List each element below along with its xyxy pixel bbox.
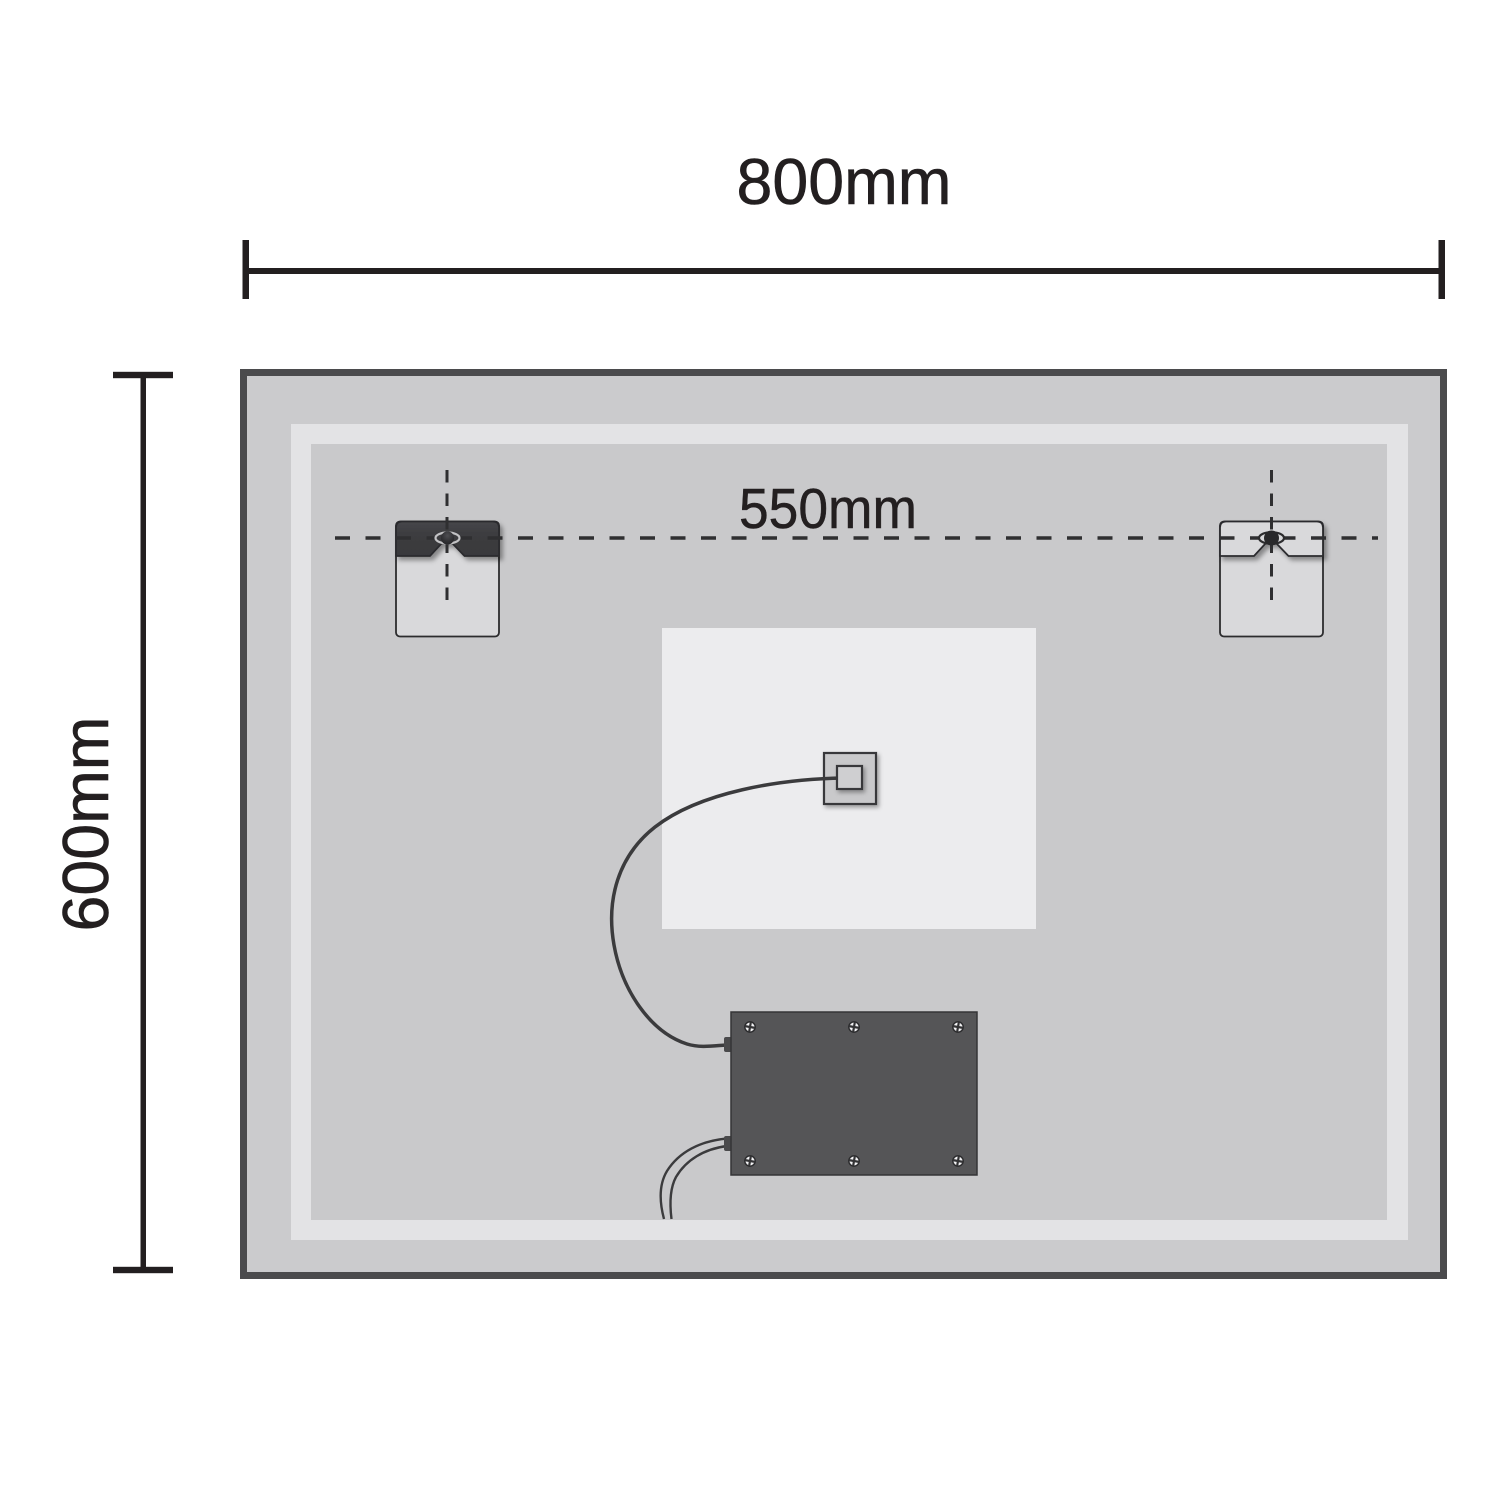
svg-text:600mm: 600mm	[49, 717, 122, 932]
svg-text:550mm: 550mm	[739, 477, 917, 541]
svg-text:800mm: 800mm	[737, 145, 952, 218]
